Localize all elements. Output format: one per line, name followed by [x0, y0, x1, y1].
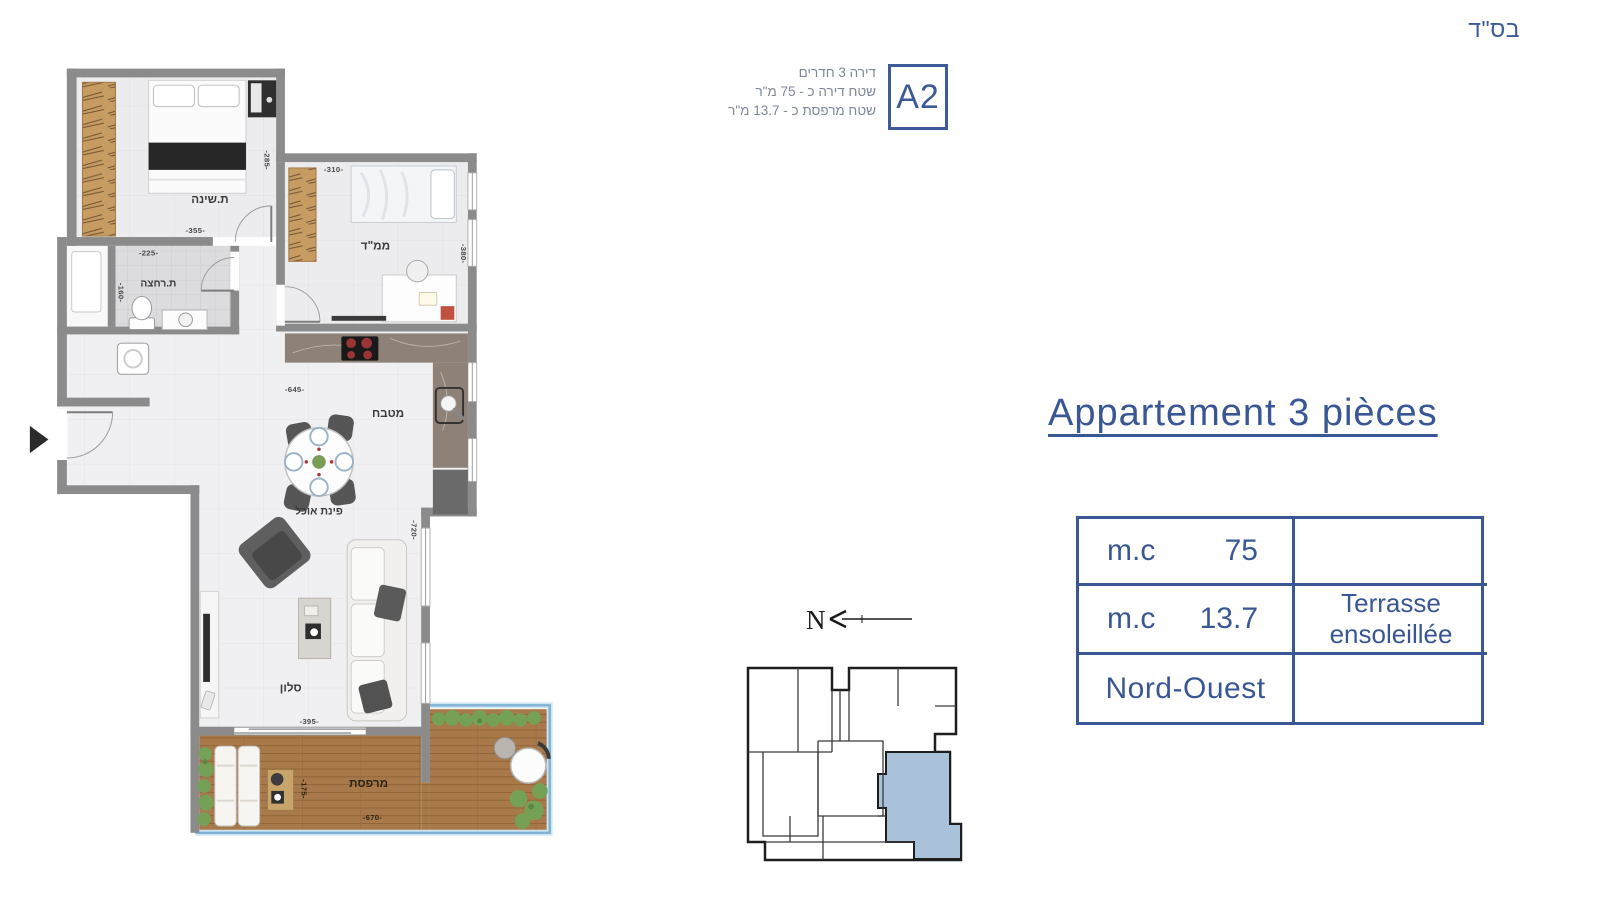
- bsd-text: בס"ד: [1468, 16, 1520, 43]
- floor-plan: ת.שינה ממ"ד ת.רחצה מטבח פינת אוכל סלון מ…: [25, 50, 575, 868]
- dim-open-space-width: -645-: [285, 385, 305, 394]
- page-title: Appartement 3 pièces: [1048, 392, 1492, 435]
- floor-plan-svg: ת.שינה ממ"ד ת.רחצה מטבח פינת אוכל סלון מ…: [25, 50, 575, 868]
- dim-bathroom-width: -225-: [139, 249, 159, 258]
- table-row-area-note: [1295, 519, 1487, 586]
- washing-machine: [117, 343, 148, 374]
- terrace-label: מרפסת: [349, 777, 388, 790]
- terrace-area-value: 13.7: [1200, 602, 1258, 636]
- highlighted-unit-a2: [878, 752, 961, 859]
- orientation-note-cell: [1295, 655, 1487, 722]
- single-bed: [351, 166, 456, 222]
- orientation-value: Nord-Ouest: [1105, 672, 1265, 706]
- dim-safe-room-height: -380-: [459, 244, 468, 264]
- bedroom-label: ת.שינה: [191, 193, 228, 206]
- table-row-terrace-cell: m.c 13.7: [1079, 586, 1295, 655]
- wardrobe: [289, 168, 316, 261]
- area-unit-label: m.c: [1107, 534, 1155, 568]
- fridge: [433, 470, 468, 515]
- orientation-cell: Nord-Ouest: [1079, 655, 1295, 722]
- dim-bedroom-width: -355-: [186, 226, 206, 235]
- north-label: N: [806, 605, 826, 635]
- dim-terrace-height: -175-: [299, 779, 308, 799]
- kitchen-label: מטבח: [372, 407, 404, 420]
- cooktop: [341, 336, 378, 360]
- dim-living-height: -720-: [409, 520, 418, 540]
- info-table: m.c 75 m.c 13.7 Terrasse ensoleillée Nor…: [1076, 516, 1484, 725]
- safe-room-label: ממ"ד: [361, 240, 390, 253]
- sliding-door: [234, 728, 365, 735]
- terrace-note-line2: ensoleillée: [1330, 619, 1453, 650]
- unit-code-label: A2: [896, 78, 940, 117]
- compass: N: [800, 596, 915, 642]
- vanity-sink: [162, 310, 207, 329]
- dim-living-width: -395-: [299, 717, 319, 726]
- unit-code-badge: A2: [888, 64, 948, 130]
- sofa: [347, 540, 407, 721]
- dim-bedroom-height: -285-: [262, 150, 271, 170]
- apartment-area-value: 75: [1225, 534, 1258, 568]
- living-label: סלון: [280, 682, 302, 695]
- table-row-area-cell: m.c 75: [1079, 519, 1295, 586]
- tv-console: [200, 591, 218, 718]
- double-bed: [149, 80, 246, 193]
- building-key-plan: [728, 646, 968, 864]
- dim-bathroom-height: -160-: [116, 283, 125, 303]
- entrance-arrow-icon: [30, 426, 48, 453]
- bedside-unit: [248, 80, 276, 117]
- apartment-info-block: דירה 3 חדרים שטח דירה כ - 75 מ"ר שטח מרפ…: [656, 63, 876, 120]
- apartment-info-line3: שטח מרפסת כ - 13.7 מ"ר: [656, 101, 876, 120]
- side-table: [267, 770, 293, 811]
- rug: [332, 316, 387, 321]
- dining-label: פינת אוכל: [295, 505, 343, 517]
- shower: [72, 252, 101, 312]
- terrace-note-line1: Terrasse: [1341, 588, 1441, 619]
- apartment-info-line1: דירה 3 חדרים: [656, 63, 876, 82]
- terrace-unit-label: m.c: [1107, 602, 1155, 636]
- coffee-table: [299, 598, 331, 658]
- terrace-note-cell: Terrasse ensoleillée: [1295, 586, 1487, 655]
- wardrobe: [82, 82, 115, 236]
- dim-safe-room-width: -310-: [324, 165, 344, 174]
- dim-terrace-width: -670-: [363, 813, 383, 822]
- apartment-info-line2: שטח דירה כ - 75 מ"ר: [656, 82, 876, 101]
- bathroom-label: ת.רחצה: [140, 279, 176, 290]
